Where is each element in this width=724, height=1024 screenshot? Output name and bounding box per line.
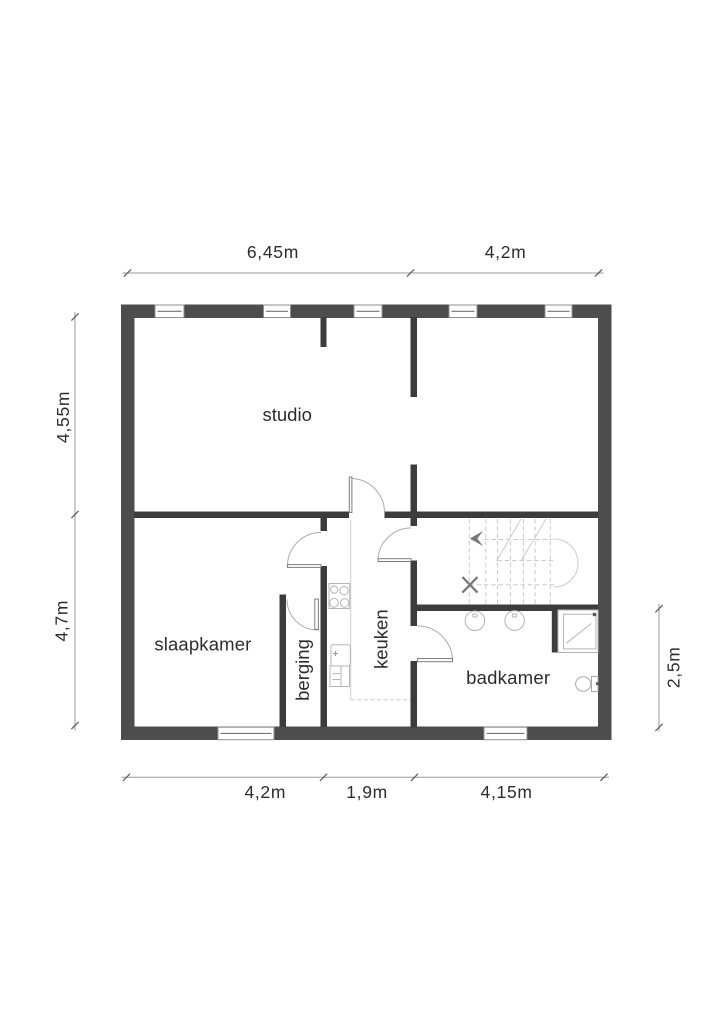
svg-text:6,45m: 6,45m bbox=[247, 242, 299, 262]
svg-text:studio: studio bbox=[263, 404, 312, 425]
svg-text:4,2m: 4,2m bbox=[485, 242, 527, 262]
svg-text:badkamer: badkamer bbox=[466, 667, 550, 688]
svg-text:4,55m: 4,55m bbox=[53, 391, 73, 443]
svg-text:1,9m: 1,9m bbox=[346, 782, 388, 802]
svg-text:keuken: keuken bbox=[371, 609, 392, 669]
svg-text:2,5m: 2,5m bbox=[664, 646, 684, 688]
svg-text:4,15m: 4,15m bbox=[481, 782, 533, 802]
svg-text:4,7m: 4,7m bbox=[52, 600, 72, 642]
svg-text:4,2m: 4,2m bbox=[244, 782, 286, 802]
svg-text:berging: berging bbox=[292, 639, 313, 701]
svg-text:slaapkamer: slaapkamer bbox=[154, 633, 251, 654]
